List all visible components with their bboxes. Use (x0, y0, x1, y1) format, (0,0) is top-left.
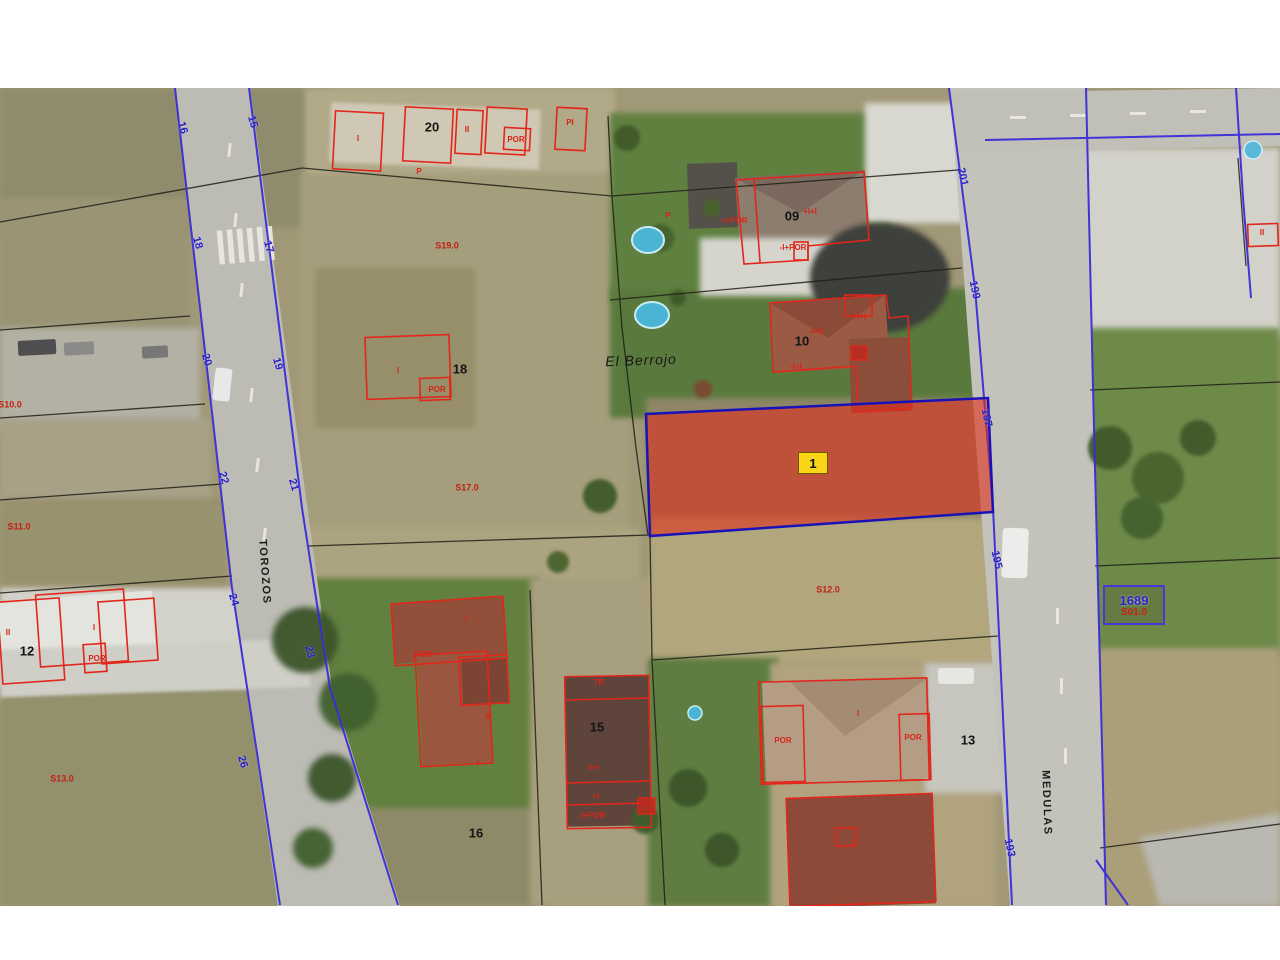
cadastral-map-canvas[interactable]: 1615181720192221242326201199197195193200… (0, 88, 1280, 906)
bottom-white-margin (0, 906, 1280, 960)
top-white-margin (0, 0, 1280, 88)
highlighted-parcel-tag[interactable]: 1 (798, 452, 828, 474)
map-graphics (0, 88, 1280, 906)
reference-parcel-box: 1689 S01.0 (1103, 585, 1165, 625)
screenshot-stage: 1615181720192221242326201199197195193200… (0, 0, 1280, 960)
reference-parcel-id: 1689 (1120, 593, 1149, 608)
reference-parcel-code: S01.0 (1121, 607, 1147, 618)
